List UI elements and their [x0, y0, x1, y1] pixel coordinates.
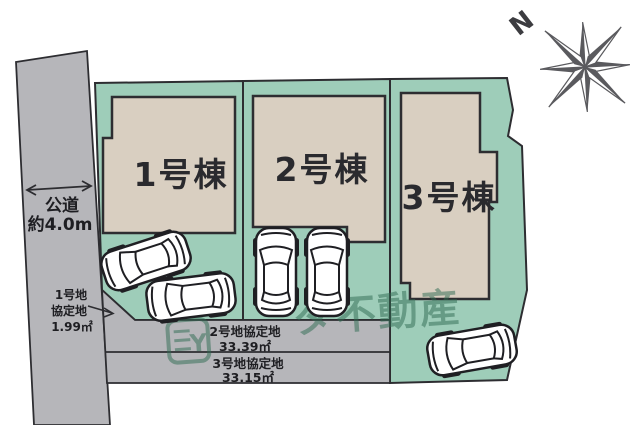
svg-text:協定地: 協定地: [51, 303, 87, 318]
svg-text:1号地: 1号地: [55, 287, 87, 302]
building-1-label: 1号棟: [134, 155, 229, 194]
watermark-logo-letter: Y: [188, 328, 209, 357]
road-type-label: 公道: [45, 195, 79, 216]
compass-rose-icon: [540, 22, 630, 112]
svg-text:33.39㎡: 33.39㎡: [219, 339, 272, 354]
building-3-label: 3号棟: [402, 178, 497, 217]
svg-text:33.15㎡: 33.15㎡: [222, 370, 275, 385]
agreement-3-label: 3号地協定地 33.15㎡: [212, 356, 284, 385]
svg-text:2号地協定地: 2号地協定地: [209, 324, 281, 339]
car: [304, 228, 350, 316]
north-label: N: [504, 5, 540, 42]
car: [253, 228, 299, 316]
building-2-label: 2号棟: [275, 150, 370, 189]
road-width-label: 約4.0m: [28, 214, 93, 235]
site-plan-drawing: 公道 約4.0m Y ダ不動産 1号棟 2号棟 3号棟 1号地 協定地 1.99…: [0, 0, 640, 425]
agreement-2-label: 2号地協定地 33.39㎡: [209, 324, 281, 354]
svg-text:1.99㎡: 1.99㎡: [51, 319, 93, 334]
svg-text:3号地協定地: 3号地協定地: [212, 356, 284, 371]
site-plan: 公道 約4.0m Y ダ不動産 1号棟 2号棟 3号棟 1号地 協定地 1.99…: [0, 0, 640, 425]
